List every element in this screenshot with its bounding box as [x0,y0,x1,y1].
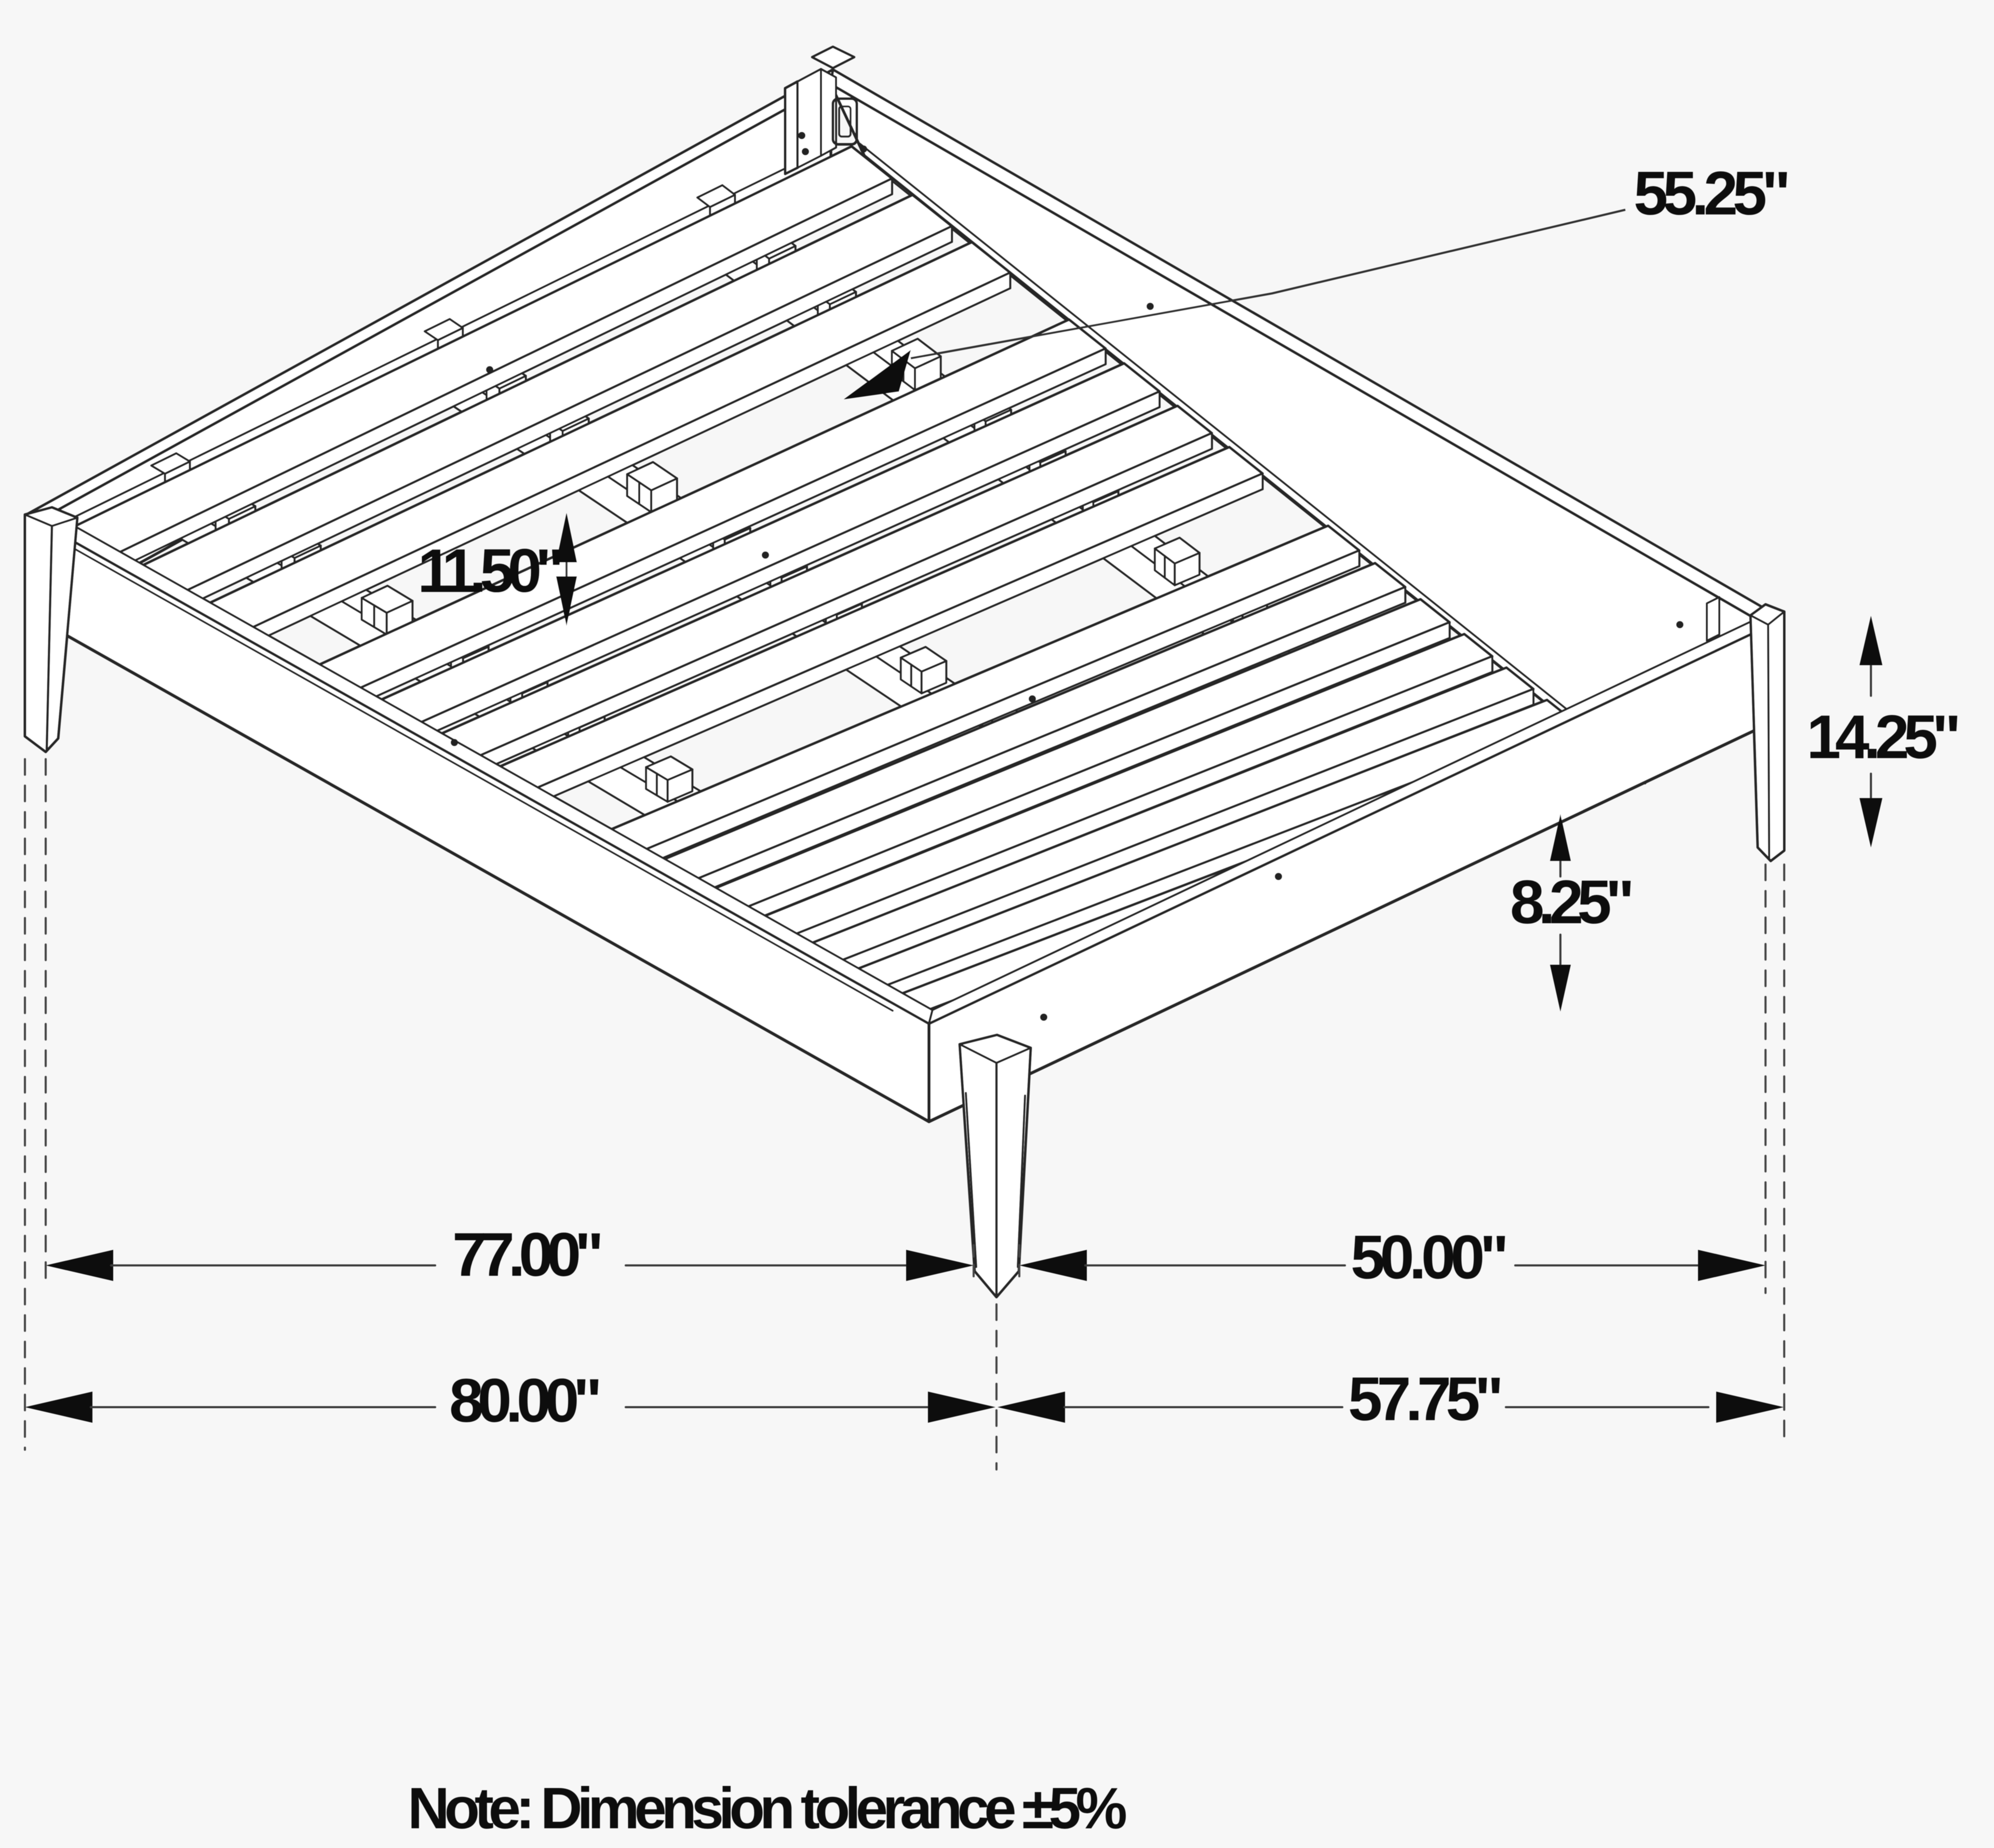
svg-text:57.75": 57.75" [1348,1365,1504,1434]
svg-text:77.00": 77.00" [452,1220,604,1289]
svg-text:50.00": 50.00" [1351,1223,1509,1292]
svg-text:Note: Dimension tolerance ±5%: Note: Dimension tolerance ±5% [408,1776,1127,1841]
svg-text:14.25": 14.25" [1807,703,1961,772]
svg-text:8.25": 8.25" [1510,868,1635,937]
svg-text:80.00": 80.00" [449,1366,602,1435]
svg-text:55.25": 55.25" [1634,159,1791,228]
svg-text:11.50": 11.50" [417,536,564,605]
